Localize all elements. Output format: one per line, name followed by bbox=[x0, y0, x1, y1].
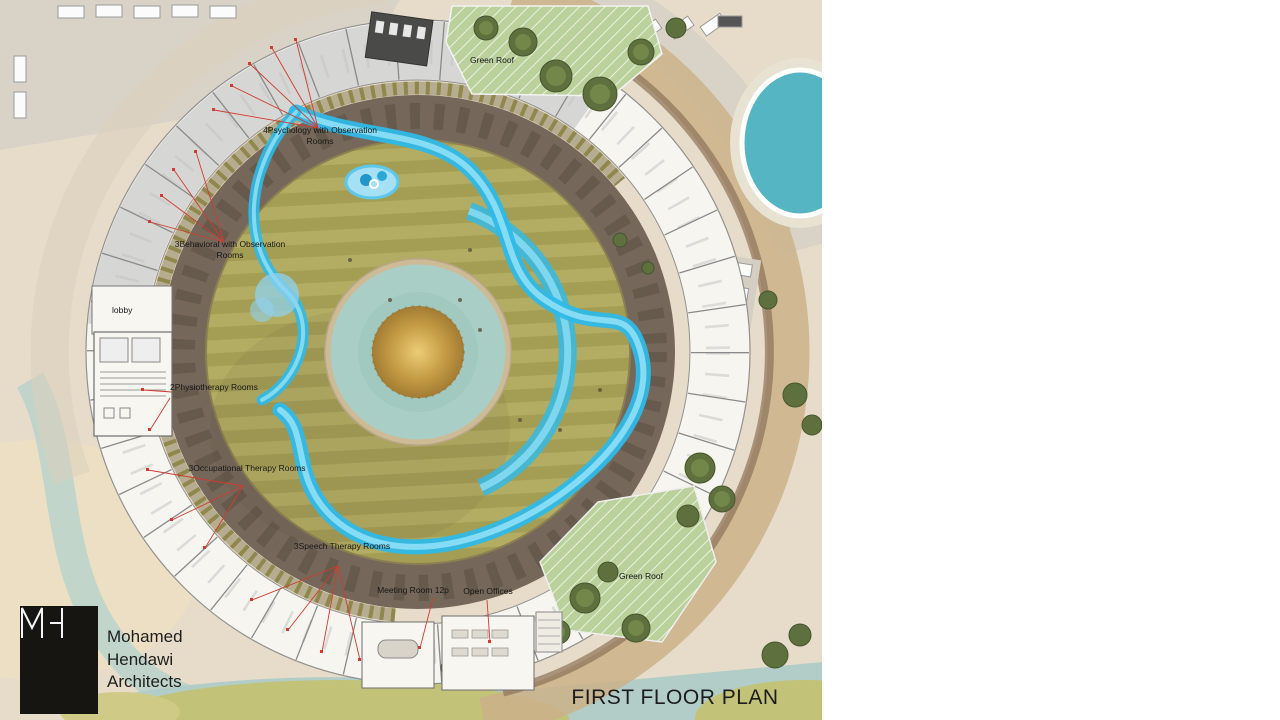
floor-plan-panel: Green Roof 4Psychology with Observation … bbox=[0, 0, 822, 720]
mh-logo-mark-icon bbox=[20, 606, 68, 640]
plan-label-physiotherapy: 2Physiotherapy Rooms bbox=[170, 382, 262, 393]
plan-label-occupational: 3Occupational Therapy Rooms bbox=[183, 463, 311, 474]
plan-label-psychology: 4Psychology with Observation Rooms bbox=[256, 125, 384, 146]
presentation-slide: Green Roof 4Psychology with Observation … bbox=[0, 0, 1280, 720]
plan-label-lobby: lobby bbox=[112, 305, 162, 316]
content-panel: First Floor Space Plan Level 2 Requireme… bbox=[822, 0, 1280, 720]
plan-label-meeting-room: Meeting Room 12p bbox=[368, 585, 458, 596]
plan-label-green-roof-top: Green Roof bbox=[452, 55, 532, 66]
plan-label-behavioral: 3Behavioral with Observation Rooms bbox=[166, 239, 294, 260]
architect-name-line: Hendawi bbox=[107, 649, 183, 672]
floor-plan-illustration bbox=[0, 0, 822, 720]
architect-name: Mohamed Hendawi Architects bbox=[107, 626, 183, 694]
plan-label-green-roof-bottom: Green Roof bbox=[604, 571, 678, 582]
plan-label-speech: 3Speech Therapy Rooms bbox=[288, 541, 396, 552]
architect-name-line: Mohamed bbox=[107, 626, 183, 649]
plan-caption: FIRST FLOOR PLAN bbox=[545, 686, 805, 710]
plan-label-open-offices: Open Offices bbox=[455, 586, 521, 597]
mh-logo bbox=[20, 606, 98, 714]
architect-name-line: Architects bbox=[107, 671, 183, 694]
